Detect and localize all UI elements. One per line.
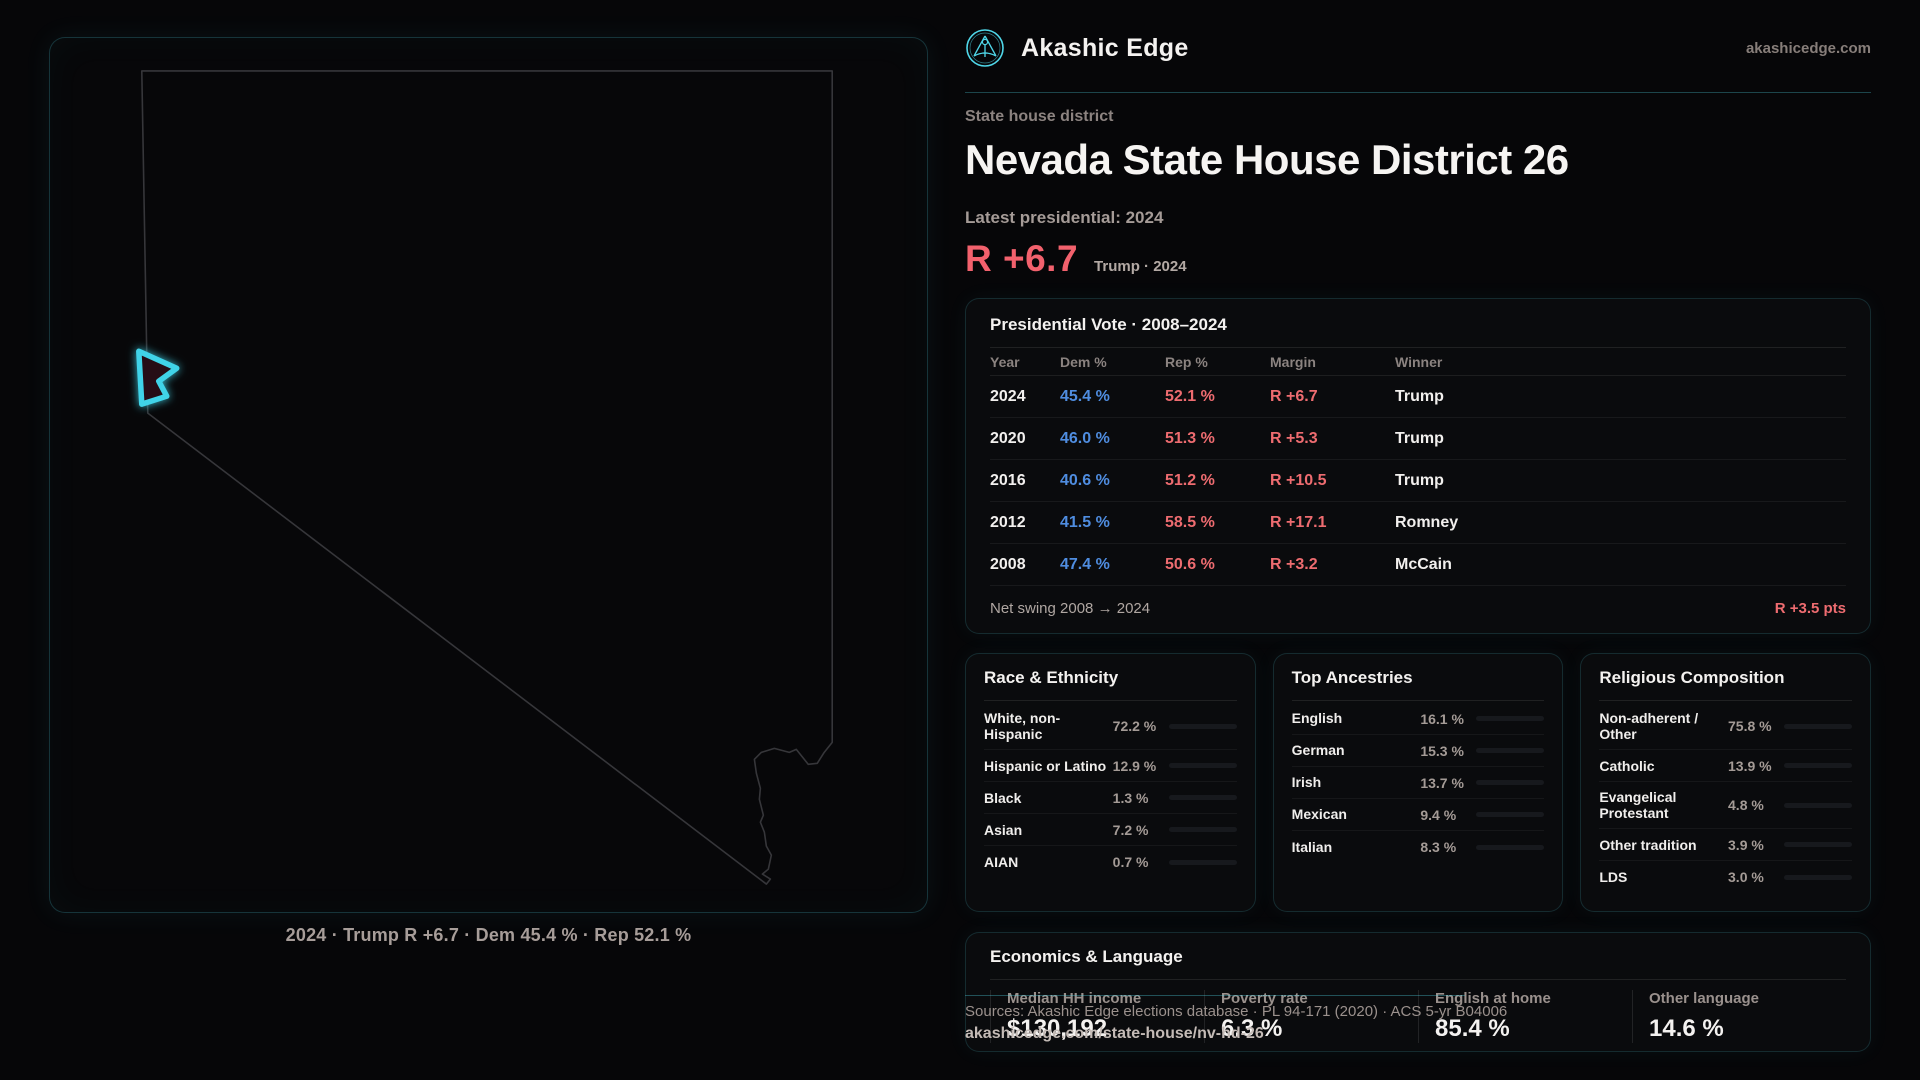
bar-track: [1476, 716, 1544, 721]
bar-track: [1476, 845, 1544, 850]
stat-label: English at home: [1435, 990, 1632, 1007]
religion-list: Non-adherent / Other 75.8 % Catholic 13.…: [1599, 703, 1852, 893]
bar-track: [1476, 748, 1544, 753]
brand-domain-link[interactable]: akashicedge.com: [1746, 40, 1871, 57]
col-margin: Margin: [1270, 354, 1395, 370]
item-value: 8.3 %: [1420, 839, 1476, 855]
item-label: Asian: [984, 822, 1113, 838]
race-card-title: Race & Ethnicity: [984, 668, 1237, 688]
list-item: Asian 7.2 %: [984, 814, 1237, 846]
cell-winner: Trump: [1395, 472, 1846, 490]
col-year: Year: [990, 354, 1060, 370]
cell-year: 2020: [990, 430, 1060, 448]
stat-tile: Other language 14.6 %: [1632, 990, 1846, 1043]
ancestries-card-title: Top Ancestries: [1292, 668, 1545, 688]
item-value: 75.8 %: [1728, 718, 1784, 734]
district-map-card: [49, 37, 928, 913]
cell-winner: McCain: [1395, 556, 1846, 574]
list-item: Non-adherent / Other 75.8 %: [1599, 703, 1852, 750]
cell-margin: R +5.3: [1270, 430, 1395, 448]
page-title: Nevada State House District 26: [965, 136, 1569, 184]
vote-table-title: Presidential Vote · 2008–2024: [990, 315, 1846, 335]
headline-margin-context: Trump · 2024: [1094, 258, 1187, 275]
divider: [984, 700, 1237, 701]
race-list: White, non-Hispanic 72.2 % Hispanic or L…: [984, 703, 1237, 878]
cell-winner: Romney: [1395, 514, 1846, 532]
item-value: 16.1 %: [1420, 711, 1476, 727]
item-label: German: [1292, 742, 1421, 758]
ancestries-card: Top Ancestries English 16.1 % German 15.…: [1273, 653, 1564, 912]
bar-track: [1784, 875, 1852, 880]
ancestries-list: English 16.1 % German 15.3 % Irish: [1292, 703, 1545, 863]
item-value: 3.0 %: [1728, 869, 1784, 885]
religion-card-title: Religious Composition: [1599, 668, 1852, 688]
item-label: Black: [984, 790, 1113, 806]
bar-track: [1169, 860, 1237, 865]
cell-rep: 51.2 %: [1165, 472, 1270, 490]
item-label: Mexican: [1292, 806, 1421, 822]
item-label: Catholic: [1599, 758, 1728, 774]
item-label: AIAN: [984, 854, 1113, 870]
item-value: 12.9 %: [1113, 758, 1169, 774]
page: 2024 · Trump R +6.7 · Dem 45.4 % · Rep 5…: [0, 0, 1920, 1080]
item-label: White, non-Hispanic: [984, 710, 1113, 742]
item-label: Other tradition: [1599, 837, 1728, 853]
headline-margin-block: R +6.7 Trump · 2024: [965, 238, 1187, 280]
cell-year: 2012: [990, 514, 1060, 532]
cell-dem: 40.6 %: [1060, 472, 1165, 490]
bar-track: [1169, 763, 1237, 768]
cell-winner: Trump: [1395, 388, 1846, 406]
bar-track: [1784, 724, 1852, 729]
cell-margin: R +6.7: [1270, 388, 1395, 406]
bar-track: [1784, 842, 1852, 847]
list-item: Black 1.3 %: [984, 782, 1237, 814]
stat-label: Other language: [1649, 990, 1846, 1007]
table-row: 2020 46.0 % 51.3 % R +5.3 Trump: [990, 418, 1846, 460]
cell-dem: 46.0 %: [1060, 430, 1165, 448]
net-swing-value: R +3.5 pts: [1775, 600, 1846, 617]
item-label: Hispanic or Latino: [984, 758, 1113, 774]
item-label: English: [1292, 710, 1421, 726]
bar-track: [1784, 803, 1852, 808]
cell-rep: 58.5 %: [1165, 514, 1270, 532]
economics-card-title: Economics & Language: [990, 947, 1846, 967]
divider: [1599, 700, 1852, 701]
item-value: 15.3 %: [1420, 743, 1476, 759]
table-row: 2012 41.5 % 58.5 % R +17.1 Romney: [990, 502, 1846, 544]
demographics-section: Race & Ethnicity White, non-Hispanic 72.…: [965, 653, 1871, 912]
col-winner: Winner: [1395, 354, 1846, 370]
cell-margin: R +10.5: [1270, 472, 1395, 490]
cell-margin: R +17.1: [1270, 514, 1395, 532]
list-item: AIAN 0.7 %: [984, 846, 1237, 878]
list-item: Irish 13.7 %: [1292, 767, 1545, 799]
cell-year: 2016: [990, 472, 1060, 490]
table-row: 2016 40.6 % 51.2 % R +10.5 Trump: [990, 460, 1846, 502]
cell-year: 2008: [990, 556, 1060, 574]
cell-margin: R +3.2: [1270, 556, 1395, 574]
item-value: 1.3 %: [1113, 790, 1169, 806]
stat-label: Median HH income: [1007, 990, 1204, 1007]
cell-dem: 41.5 %: [1060, 514, 1165, 532]
header: Akashic Edge akashicedge.com: [965, 27, 1871, 69]
bar-track: [1169, 795, 1237, 800]
item-label: Italian: [1292, 839, 1421, 855]
cell-winner: Trump: [1395, 430, 1846, 448]
bar-track: [1476, 812, 1544, 817]
nevada-outline: [142, 71, 832, 884]
item-label: LDS: [1599, 869, 1728, 885]
race-ethnicity-card: Race & Ethnicity White, non-Hispanic 72.…: [965, 653, 1256, 912]
content-panel: Akashic Edge akashicedge.com State house…: [965, 0, 1871, 1080]
list-item: Catholic 13.9 %: [1599, 750, 1852, 782]
brand-logo-icon: [965, 28, 1005, 68]
list-item: Mexican 9.4 %: [1292, 799, 1545, 831]
bar-track: [1169, 724, 1237, 729]
item-value: 3.9 %: [1728, 837, 1784, 853]
list-item: Italian 8.3 %: [1292, 831, 1545, 863]
item-label: Irish: [1292, 774, 1421, 790]
list-item: LDS 3.0 %: [1599, 861, 1852, 893]
kicker: State house district: [965, 108, 1113, 126]
header-divider: [965, 92, 1871, 93]
nevada-map: [50, 38, 927, 912]
list-item: Evangelical Protestant 4.8 %: [1599, 782, 1852, 829]
cell-dem: 47.4 %: [1060, 556, 1165, 574]
net-swing-label: Net swing 2008 → 2024: [990, 600, 1150, 617]
bar-track: [1476, 780, 1544, 785]
district-shape: [139, 351, 177, 404]
vote-table-header: Year Dem % Rep % Margin Winner: [990, 348, 1846, 376]
religion-card: Religious Composition Non-adherent / Oth…: [1580, 653, 1871, 912]
item-value: 4.8 %: [1728, 797, 1784, 813]
item-label: Non-adherent / Other: [1599, 710, 1728, 742]
divider: [1292, 700, 1545, 701]
item-value: 13.9 %: [1728, 758, 1784, 774]
brand-name: Akashic Edge: [1021, 34, 1189, 63]
item-value: 13.7 %: [1420, 775, 1476, 791]
list-item: Other tradition 3.9 %: [1599, 829, 1852, 861]
stat-value: 14.6 %: [1649, 1015, 1846, 1043]
item-value: 72.2 %: [1113, 718, 1169, 734]
list-item: German 15.3 %: [1292, 735, 1545, 767]
footer-permalink[interactable]: akashicedge.com/state-house/nv-hd-26: [965, 1025, 1465, 1043]
col-dem: Dem %: [1060, 354, 1165, 370]
item-value: 0.7 %: [1113, 854, 1169, 870]
list-item: Hispanic or Latino 12.9 %: [984, 750, 1237, 782]
bar-track: [1784, 763, 1852, 768]
divider: [990, 979, 1846, 980]
item-value: 9.4 %: [1420, 807, 1476, 823]
latest-presidential-label: Latest presidential: 2024: [965, 208, 1163, 228]
cell-rep: 51.3 %: [1165, 430, 1270, 448]
list-item: English 16.1 %: [1292, 703, 1545, 735]
item-label: Evangelical Protestant: [1599, 789, 1728, 821]
cell-rep: 52.1 %: [1165, 388, 1270, 406]
map-caption: 2024 · Trump R +6.7 · Dem 45.4 % · Rep 5…: [49, 925, 928, 946]
cell-rep: 50.6 %: [1165, 556, 1270, 574]
item-value: 7.2 %: [1113, 822, 1169, 838]
presidential-vote-card: Presidential Vote · 2008–2024 Year Dem %…: [965, 298, 1871, 634]
cell-dem: 45.4 %: [1060, 388, 1165, 406]
bar-track: [1169, 827, 1237, 832]
headline-margin-value: R +6.7: [965, 238, 1078, 280]
cell-year: 2024: [990, 388, 1060, 406]
col-rep: Rep %: [1165, 354, 1270, 370]
list-item: White, non-Hispanic 72.2 %: [984, 703, 1237, 750]
table-row: 2024 45.4 % 52.1 % R +6.7 Trump: [990, 376, 1846, 418]
stat-label: Poverty rate: [1221, 990, 1418, 1007]
net-swing-row: Net swing 2008 → 2024 R +3.5 pts: [990, 586, 1846, 630]
vote-table-body: 2024 45.4 % 52.1 % R +6.7 Trump 2020 46.…: [990, 376, 1846, 586]
table-row: 2008 47.4 % 50.6 % R +3.2 McCain: [990, 544, 1846, 586]
